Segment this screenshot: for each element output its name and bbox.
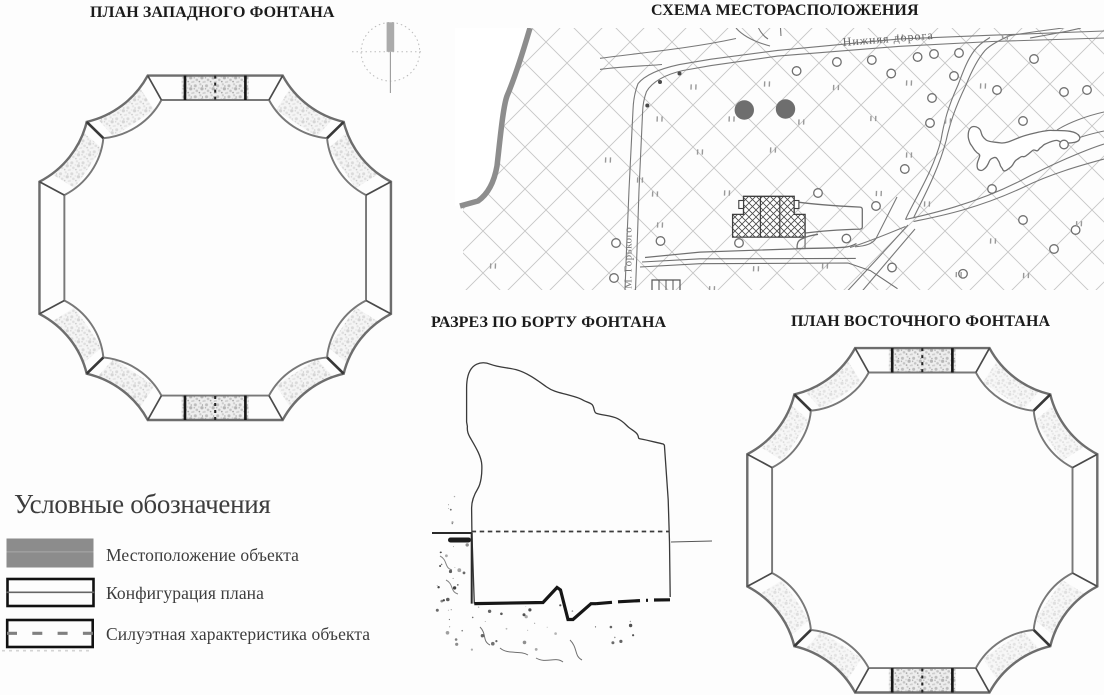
svg-text:М. Горького: М. Горького [623, 227, 635, 289]
